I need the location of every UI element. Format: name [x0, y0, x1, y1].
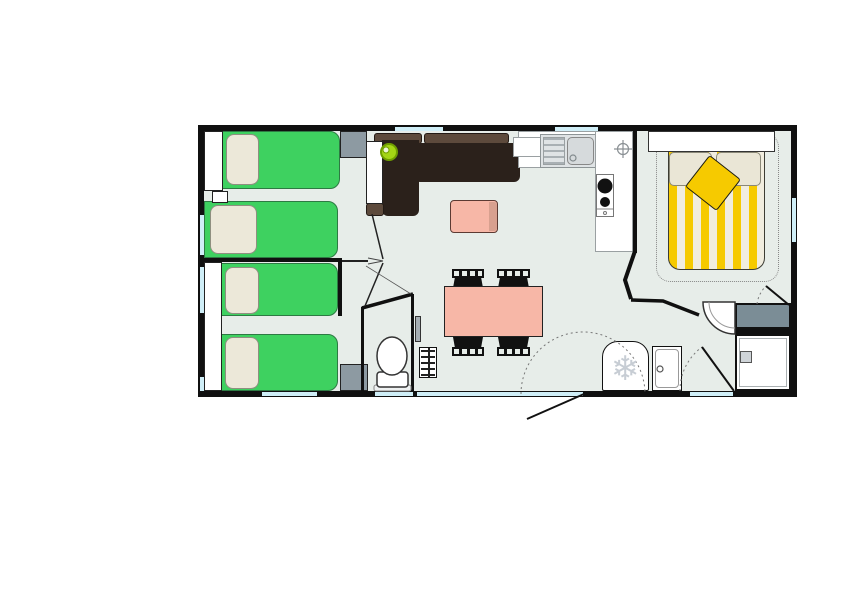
wall-wc-right: [411, 294, 414, 391]
window-top-2: [555, 127, 598, 131]
floor-plan-canvas: ❄: [0, 0, 843, 596]
window-bottom-living: [417, 392, 583, 396]
window-bottom-bathroom: [690, 392, 733, 396]
window-right-1: [792, 198, 796, 242]
window-left-2: [200, 267, 204, 313]
wall-wc-left: [361, 307, 364, 391]
entrance-door-leaf: [527, 394, 584, 419]
window-bottom-wc: [375, 392, 413, 396]
window-left-1: [200, 215, 204, 255]
window-bottom-1: [262, 392, 317, 396]
wall-bedroom-divider: [198, 258, 342, 262]
window-left-3: [200, 377, 204, 391]
wall-bedroom2-right: [338, 258, 342, 316]
wall-kitchen-right: [633, 131, 637, 253]
window-top-1: [395, 127, 443, 131]
